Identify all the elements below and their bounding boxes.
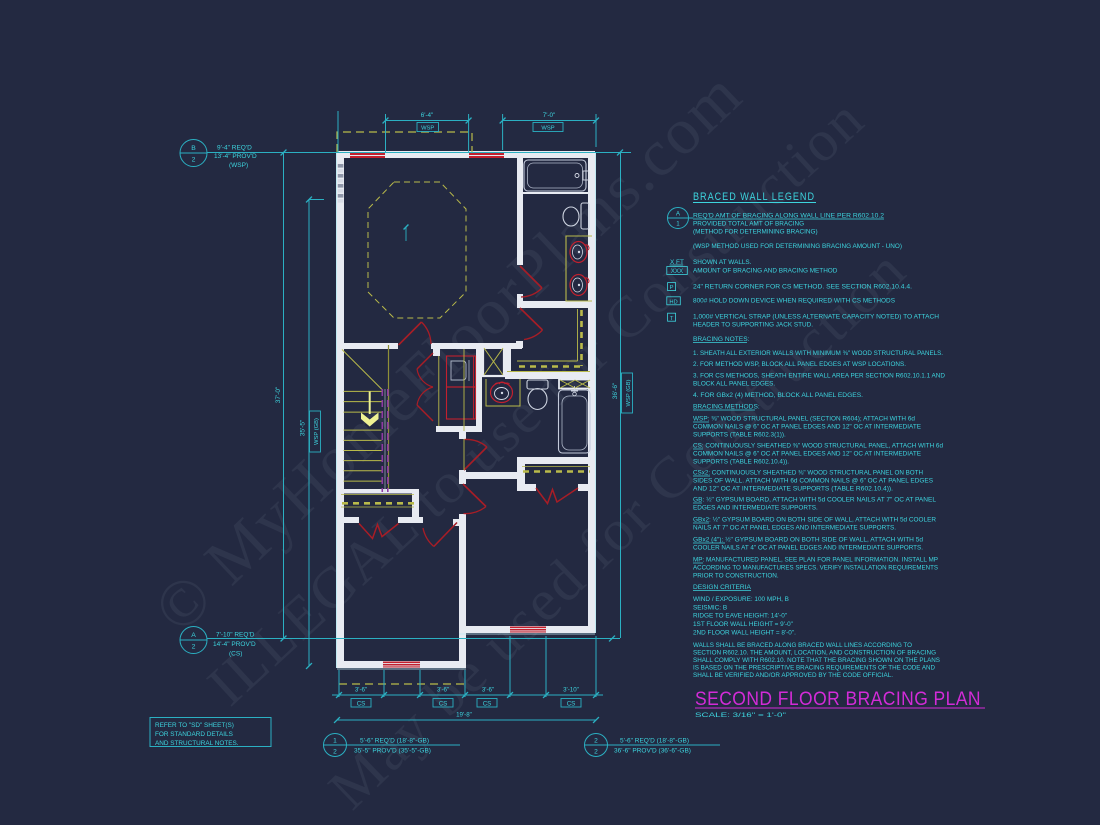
svg-text:3'-6": 3'-6" bbox=[355, 687, 367, 694]
svg-text:1: 1 bbox=[333, 738, 337, 745]
svg-text:MP: MANUFACTURED PANEL, SEE PL: MP: MANUFACTURED PANEL, SEE PLAN FOR PAN… bbox=[693, 557, 938, 564]
svg-text:T: T bbox=[670, 316, 674, 322]
svg-text:CS: CS bbox=[567, 700, 576, 707]
svg-text:CS: CONTINUOUSLY SHEATHED ⅜" W: CS: CONTINUOUSLY SHEATHED ⅜" WOOD STRUCT… bbox=[693, 443, 943, 450]
svg-text:2. FOR METHOD WSP, BLOCK ALL P: 2. FOR METHOD WSP, BLOCK ALL PANEL EDGES… bbox=[693, 361, 906, 368]
svg-text:SUPPORTS (TABLE R602.10.4)).: SUPPORTS (TABLE R602.10.4)). bbox=[693, 459, 789, 466]
svg-text:NAILS AT 7" OC AT PANEL EDGES: NAILS AT 7" OC AT PANEL EDGES AND INTERM… bbox=[693, 525, 896, 532]
svg-text:37'-0": 37'-0" bbox=[275, 386, 282, 403]
svg-text:HEADER TO SUPPORTING JACK STUD: HEADER TO SUPPORTING JACK STUD. bbox=[693, 322, 813, 329]
svg-text:(CS): (CS) bbox=[229, 651, 242, 658]
svg-text:3'-6": 3'-6" bbox=[437, 687, 449, 694]
svg-text:3. FOR CS METHODS, SHEATH ENTI: 3. FOR CS METHODS, SHEATH ENTIRE WALL AR… bbox=[693, 373, 945, 380]
svg-text:24" RETURN CORNER FOR CS METHO: 24" RETURN CORNER FOR CS METHOD. SEE SEC… bbox=[693, 284, 912, 291]
svg-text:WSP (GB): WSP (GB) bbox=[314, 418, 320, 445]
svg-text:3'-10": 3'-10" bbox=[563, 687, 579, 694]
svg-text:(WSP METHOD USED FOR DETERMINI: (WSP METHOD USED FOR DETERMINING BRACING… bbox=[693, 243, 902, 250]
svg-text:6'-4": 6'-4" bbox=[421, 112, 434, 119]
svg-text:2: 2 bbox=[192, 644, 196, 651]
svg-text:REQ'D AMT OF BRACING ALONG WAL: REQ'D AMT OF BRACING ALONG WALL LINE PER… bbox=[693, 213, 884, 220]
svg-text:SIDES OF WALL. ATTACH WITH 6d: SIDES OF WALL. ATTACH WITH 6d COMMON NAI… bbox=[693, 478, 933, 485]
svg-text:5'-6" REQ'D (18'-8"-GB): 5'-6" REQ'D (18'-8"-GB) bbox=[620, 738, 689, 745]
svg-text:SECTION R602.10. THE AMOUNT, L: SECTION R602.10. THE AMOUNT, LOCATION, A… bbox=[693, 650, 936, 657]
svg-text:FOR STANDARD DETAILS: FOR STANDARD DETAILS bbox=[155, 731, 233, 738]
svg-text:GBx2: ½" GYPSUM BOARD ON BOTH: GBx2: ½" GYPSUM BOARD ON BOTH SIDE OF WA… bbox=[693, 516, 936, 524]
svg-text:CSx2: CONTINUOUSLY SHEATHED ⅜": CSx2: CONTINUOUSLY SHEATHED ⅜" WOOD STRU… bbox=[693, 470, 923, 477]
svg-text:35'-5": 35'-5" bbox=[300, 419, 307, 436]
svg-text:XXX: XXX bbox=[671, 268, 683, 275]
svg-text:BLOCK ALL PANEL EDGES.: BLOCK ALL PANEL EDGES. bbox=[693, 381, 775, 388]
svg-text:7'-10" REQ'D: 7'-10" REQ'D bbox=[216, 632, 255, 639]
svg-text:COMMON NAILS @ 6" OC AT PANEL: COMMON NAILS @ 6" OC AT PANEL EDGES AND … bbox=[693, 424, 921, 431]
svg-text:SEISMIC: B: SEISMIC: B bbox=[693, 605, 727, 612]
svg-text:(METHOD FOR DETERMINING BRACIN: (METHOD FOR DETERMINING BRACING) bbox=[693, 229, 818, 236]
svg-text:P: P bbox=[670, 285, 674, 291]
svg-text:PROVIDED TOTAL AMT OF BRACING: PROVIDED TOTAL AMT OF BRACING bbox=[693, 221, 804, 228]
svg-text:800# HOLD DOWN DEVICE WHEN REQ: 800# HOLD DOWN DEVICE WHEN REQUIRED WITH… bbox=[693, 298, 895, 305]
svg-text:A: A bbox=[191, 632, 196, 639]
svg-text:BRACED WALL LEGEND: BRACED WALL LEGEND bbox=[693, 191, 815, 203]
svg-text:4. FOR GBx2 (4) METHOD, BLOCK: 4. FOR GBx2 (4) METHOD, BLOCK ALL PANEL … bbox=[693, 392, 863, 399]
svg-text:ACCORDING TO MANUFACTURES SPEC: ACCORDING TO MANUFACTURES SPECS. VERIFY … bbox=[693, 565, 938, 572]
svg-text:3'-6": 3'-6" bbox=[482, 687, 494, 694]
svg-text:WALLS SHALL BE BRACED ALONG BR: WALLS SHALL BE BRACED ALONG BRACED WALL … bbox=[693, 642, 912, 649]
svg-text:WSP: WSP bbox=[421, 126, 434, 132]
svg-text:14'-4" PROV'D: 14'-4" PROV'D bbox=[213, 641, 256, 648]
svg-text:EDGES AND INTERMEDIATE SUPPORT: EDGES AND INTERMEDIATE SUPPORTS. bbox=[693, 505, 818, 512]
svg-text:2ND FLOOR WALL HEIGHT = 8'-0".: 2ND FLOOR WALL HEIGHT = 8'-0". bbox=[693, 630, 796, 637]
svg-text:BRACING METHODS:: BRACING METHODS: bbox=[693, 404, 760, 411]
svg-text:1: 1 bbox=[676, 221, 680, 228]
svg-text:HD: HD bbox=[669, 299, 677, 305]
svg-text:2: 2 bbox=[333, 749, 337, 756]
svg-text:1. SHEATH ALL EXTERIOR WALLS W: 1. SHEATH ALL EXTERIOR WALLS WITH MINIMU… bbox=[693, 350, 943, 357]
svg-text:GBx2 (4"): ½" GYPSUM BOARD ON: GBx2 (4"): ½" GYPSUM BOARD ON BOTH SIDE … bbox=[693, 536, 923, 544]
svg-text:DESIGN CRITERIA: DESIGN CRITERIA bbox=[693, 584, 751, 591]
svg-text:(WSP): (WSP) bbox=[229, 162, 248, 169]
svg-text:AND 12" OC AT INTERMEDIATE SUP: AND 12" OC AT INTERMEDIATE SUPPORTS (TAB… bbox=[693, 486, 893, 493]
svg-text:2: 2 bbox=[192, 157, 196, 164]
svg-text:BRACING NOTES:: BRACING NOTES: bbox=[693, 336, 750, 343]
svg-text:SCALE: 3/16" = 1'-0": SCALE: 3/16" = 1'-0" bbox=[695, 712, 787, 719]
svg-text:WSP: WSP bbox=[541, 126, 554, 132]
svg-text:REFER TO "SD" SHEET(S): REFER TO "SD" SHEET(S) bbox=[155, 722, 234, 729]
svg-text:CS: CS bbox=[357, 700, 366, 707]
svg-text:35'-5" PROV'D (35'-5"-GB): 35'-5" PROV'D (35'-5"-GB) bbox=[354, 748, 431, 755]
svg-text:CS: CS bbox=[439, 700, 448, 707]
svg-text:13'-4" PROV'D: 13'-4" PROV'D bbox=[214, 153, 257, 160]
svg-text:B: B bbox=[191, 145, 196, 152]
svg-text:AMOUNT OF BRACING AND BRACING: AMOUNT OF BRACING AND BRACING METHOD bbox=[693, 268, 838, 275]
svg-text:RIDGE TO EAVE HEIGHT: 14'-0": RIDGE TO EAVE HEIGHT: 14'-0" bbox=[693, 613, 787, 620]
svg-text:36'-6" PROV'D (36'-6"-GB): 36'-6" PROV'D (36'-6"-GB) bbox=[614, 748, 691, 755]
svg-text:WSP (GB): WSP (GB) bbox=[626, 379, 632, 406]
svg-text:SUPPORTS (TABLE R602.3(1)).: SUPPORTS (TABLE R602.3(1)). bbox=[693, 432, 786, 439]
svg-text:36'-6": 36'-6" bbox=[612, 382, 619, 399]
svg-text:7'-0": 7'-0" bbox=[543, 112, 556, 119]
svg-text:COOLER NAILS AT 4" OC AT PANEL: COOLER NAILS AT 4" OC AT PANEL EDGES AND… bbox=[693, 545, 923, 552]
svg-text:SHALL BE VERIFIED AND/OR APPRO: SHALL BE VERIFIED AND/OR APPROVED BY THE… bbox=[693, 672, 893, 679]
svg-text:AND STRUCTURAL NOTES.: AND STRUCTURAL NOTES. bbox=[155, 740, 239, 747]
svg-text:19'-8": 19'-8" bbox=[456, 712, 472, 719]
svg-text:GB: ½" GYPSUM BOARD, ATTACH WI: GB: ½" GYPSUM BOARD, ATTACH WITH 5d COOL… bbox=[693, 496, 936, 504]
svg-text:PRIOR TO CONSTRUCTION.: PRIOR TO CONSTRUCTION. bbox=[693, 573, 779, 580]
svg-text:1,000# VERTICAL STRAP (UNLESS: 1,000# VERTICAL STRAP (UNLESS ALTERNATE … bbox=[693, 314, 939, 321]
svg-text:2: 2 bbox=[594, 738, 598, 745]
svg-text:SHOWN AT WALLS.: SHOWN AT WALLS. bbox=[693, 259, 752, 266]
svg-text:2: 2 bbox=[594, 749, 598, 756]
svg-text:5'-6" REQ'D (18'-8"-GB): 5'-6" REQ'D (18'-8"-GB) bbox=[360, 738, 429, 745]
svg-text:SHALL COMPLY WITH R602.10. NOT: SHALL COMPLY WITH R602.10. NOTE THAT THE… bbox=[693, 657, 940, 664]
svg-text:WSP: ⅜" WOOD STRUCTURAL PANEL: WSP: ⅜" WOOD STRUCTURAL PANEL (SECTION R… bbox=[693, 416, 915, 423]
svg-text:SECOND FLOOR BRACING PLAN: SECOND FLOOR BRACING PLAN bbox=[695, 688, 981, 710]
svg-text:COMMON NAILS @ 6" OC AT PANEL: COMMON NAILS @ 6" OC AT PANEL EDGES AND … bbox=[693, 451, 921, 458]
svg-text:CS: CS bbox=[483, 700, 492, 707]
svg-text:9'-4" REQ'D: 9'-4" REQ'D bbox=[217, 145, 252, 152]
svg-text:WIND / EXPOSURE: 100 MPH, B: WIND / EXPOSURE: 100 MPH, B bbox=[693, 596, 789, 603]
svg-text:IS BASED ON THE PRESCRIPTIVE B: IS BASED ON THE PRESCRIPTIVE BRACING REQ… bbox=[693, 665, 935, 672]
svg-text:1ST FLOOR WALL HEIGHT = 9'-0": 1ST FLOOR WALL HEIGHT = 9'-0" bbox=[693, 621, 793, 628]
